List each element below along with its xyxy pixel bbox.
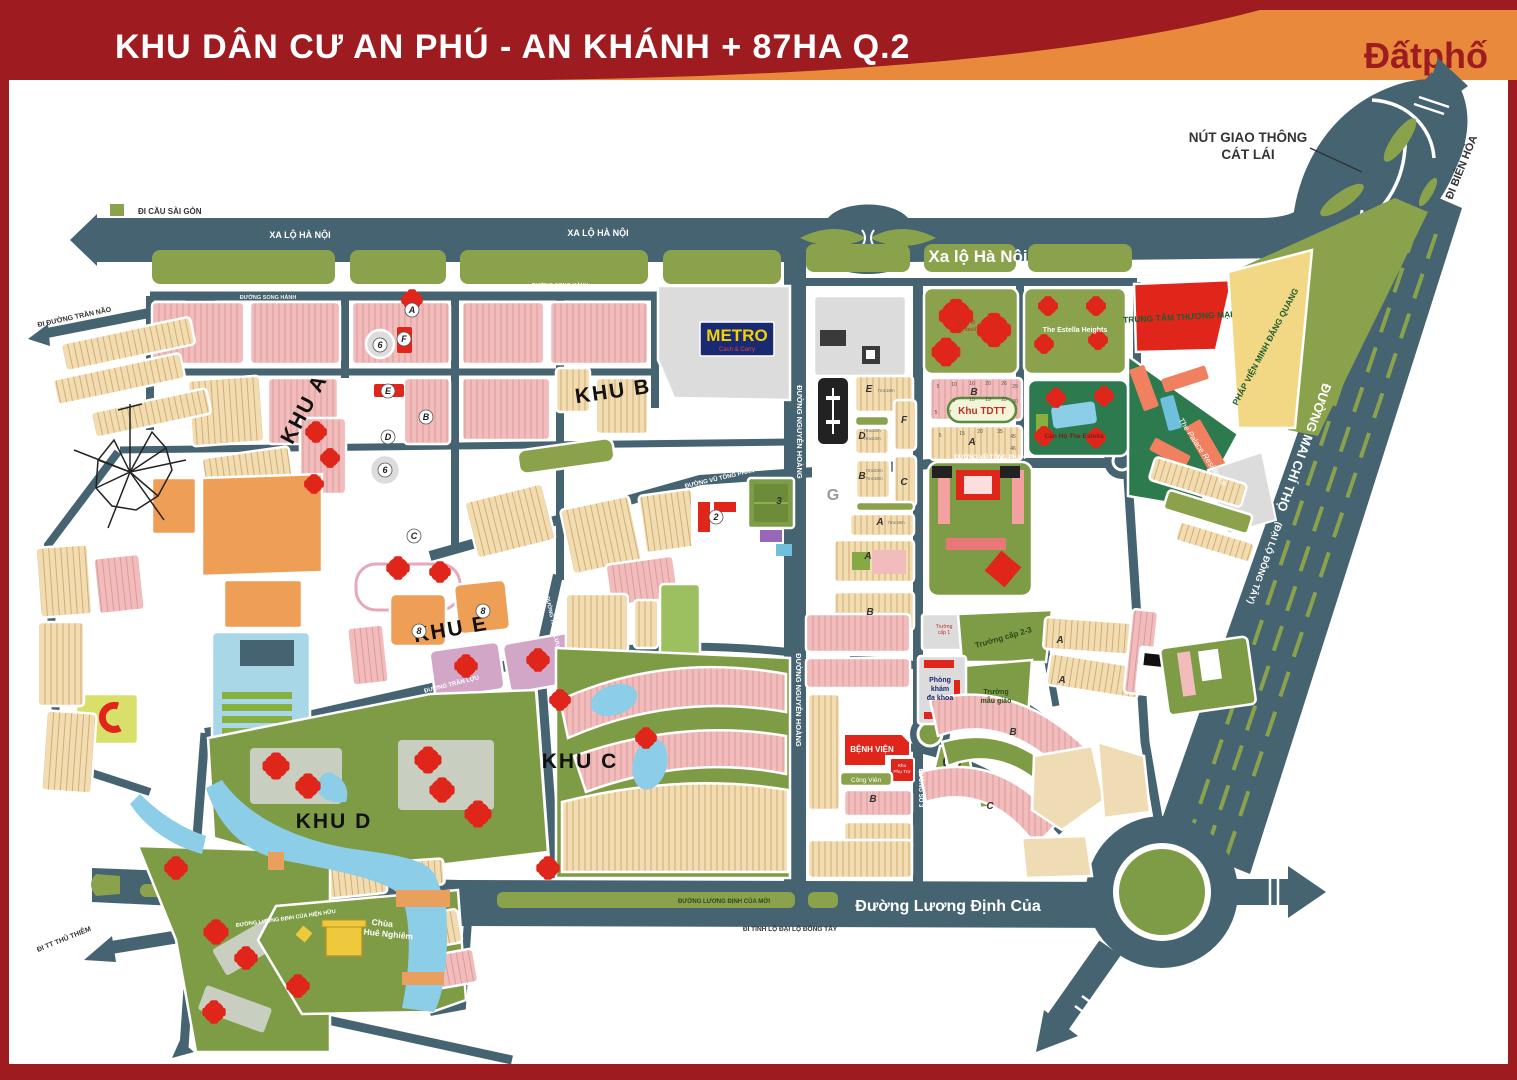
svg-text:Khu TDTT: Khu TDTT	[958, 406, 1006, 417]
block-marker-label: F	[901, 415, 908, 426]
road-label: ĐI TỈNH LỘ ĐẠI LỘ ĐÔNG TÂY	[743, 924, 838, 933]
lot-number: 5	[935, 410, 938, 416]
road-label: ĐƯỜNG SONG HÀNH	[240, 293, 297, 301]
block-marker-label: E	[385, 386, 392, 396]
map-canvas: KHU DÂN CƯ AN PHÚ - AN KHÁNH + 87HA Q.2 …	[0, 0, 1517, 1080]
lot-number: 15	[969, 397, 975, 403]
block-marker-label: C	[986, 801, 994, 812]
lot-number: 30	[1012, 399, 1018, 405]
interchange-label: CÁT LÁI	[1221, 147, 1274, 162]
svg-text:Phụ Trợ: Phụ Trợ	[893, 769, 910, 775]
lot-number: 35	[997, 429, 1003, 435]
clinic-label: Phòng	[929, 677, 951, 684]
bridge	[396, 890, 450, 907]
block-marker-label: G	[827, 487, 839, 504]
khu-phu-tro-label: Khu	[898, 763, 907, 769]
lot-number: 25	[1001, 397, 1007, 403]
brand-logo: Đấtphố	[1364, 35, 1488, 76]
block-marker-label: B	[866, 607, 873, 618]
road-label: Xa lộ Hà Nội	[928, 247, 1027, 266]
svg-text:cấp 1: cấp 1	[938, 630, 950, 636]
lot-number: 20	[985, 381, 991, 387]
block-marker-label: 3	[776, 496, 782, 507]
block-marker-label: B	[869, 794, 876, 805]
zone-khu-c: KHU C	[542, 750, 619, 773]
svg-text:đa khoa: đa khoa	[927, 695, 954, 702]
road-label: ĐI CẦU SÀI GÒN	[138, 206, 202, 216]
block-marker-label: A	[1055, 635, 1063, 646]
block-marker-label: B	[423, 412, 430, 422]
lot-number: 26	[1001, 381, 1007, 387]
kindergarten-label: Trường	[983, 689, 1008, 696]
lot-size-label: 7mx18m	[887, 520, 905, 525]
block-marker-label: B	[1009, 727, 1016, 738]
bridge	[402, 972, 444, 985]
block-marker-label: D	[385, 432, 392, 442]
svg-text:mẫu giáo: mẫu giáo	[981, 696, 1012, 705]
lot-number: 46	[1010, 446, 1016, 452]
block-marker-label: C	[900, 477, 908, 488]
hospital-label: BỆNH VIỆN	[850, 745, 894, 754]
road-label: ĐƯỜNG VŨ TÔNG PHAN	[954, 453, 1025, 461]
lot-size-label: 7mx18m	[865, 476, 883, 481]
road-label: ĐƯỜNG NGUYỄN HOÀNG	[794, 653, 803, 747]
lot-number: 20	[977, 429, 983, 435]
road-label: Đường Lương Định Của	[855, 898, 1041, 915]
estella-heights-label: The Estella Heights	[1043, 327, 1108, 334]
cantavil-label: Căn Hộ	[957, 320, 976, 326]
lot-size-label: 7mx18m	[877, 388, 895, 393]
metro-sub-label: Cash & Carry	[719, 347, 755, 353]
lot-number: 15	[959, 431, 965, 437]
block-marker-label: A	[875, 517, 883, 528]
lot-number: 5	[939, 433, 942, 439]
interchange-label: NÚT GIAO THÔNG	[1189, 130, 1308, 145]
lot-number: 9	[953, 398, 956, 404]
lot-number: 7	[949, 410, 952, 416]
block-marker-label: A	[408, 305, 416, 315]
lot-size-label: 7mx18m	[863, 428, 881, 433]
block-marker-label: C	[411, 531, 418, 541]
road-label: XA LỘ HÀ NỘI	[567, 227, 628, 238]
orange-block	[202, 474, 322, 576]
road-label: ĐI TT THỦ THIÊM	[35, 924, 92, 954]
lot-number: 19	[985, 397, 991, 403]
page-title: KHU DÂN CƯ AN PHÚ - AN KHÁNH + 87HA Q.2	[115, 28, 910, 66]
map-page: KHU DÂN CƯ AN PHÚ - AN KHÁNH + 87HA Q.2 …	[0, 0, 1517, 1080]
road-label: ĐƯỜNG LƯƠNG ĐỊNH CỦA MỚI	[678, 897, 770, 905]
metro-label: METRO	[706, 326, 767, 345]
estella-label: Căn Hộ The Estella	[1045, 433, 1104, 440]
block-marker-label: A	[967, 437, 975, 448]
block-marker-label: A	[1057, 675, 1065, 686]
lot-number: 10	[951, 382, 957, 388]
lot-size-label: 7mx23m	[863, 436, 881, 441]
lot-number: 5	[937, 384, 940, 390]
block-marker-label: 8	[416, 626, 421, 636]
lot-number: 29	[1012, 384, 1018, 390]
road-label: ĐƯỜNG SỐ 3	[917, 769, 925, 808]
block-marker-label: 8	[480, 606, 485, 616]
block-marker-label: A	[863, 551, 871, 562]
block-marker-label: F	[401, 334, 407, 344]
svg-text:Cantavil: Cantavil	[956, 327, 976, 333]
lot-size-label: 7mx23m	[865, 468, 883, 473]
pagoda-building	[326, 924, 362, 956]
block-marker-label: E	[866, 384, 873, 395]
road-label: ĐƯỜNG SONG HÀNH	[532, 281, 589, 289]
svg-text:khám: khám	[931, 686, 949, 693]
road-label: XA LỘ HÀ NỘI	[269, 229, 330, 240]
road-label: ĐƯỜNG NGUYỄN HOÀNG	[795, 385, 804, 479]
header: KHU DÂN CƯ AN PHÚ - AN KHÁNH + 87HA Q.2 …	[0, 0, 1517, 80]
cong-vien-label: Công Viên	[851, 777, 882, 784]
lot-number: 16	[969, 381, 975, 387]
block-marker-label: 2	[712, 512, 718, 522]
zone-khu-d: KHU D	[296, 810, 373, 833]
lot-number: 45	[1010, 434, 1016, 440]
